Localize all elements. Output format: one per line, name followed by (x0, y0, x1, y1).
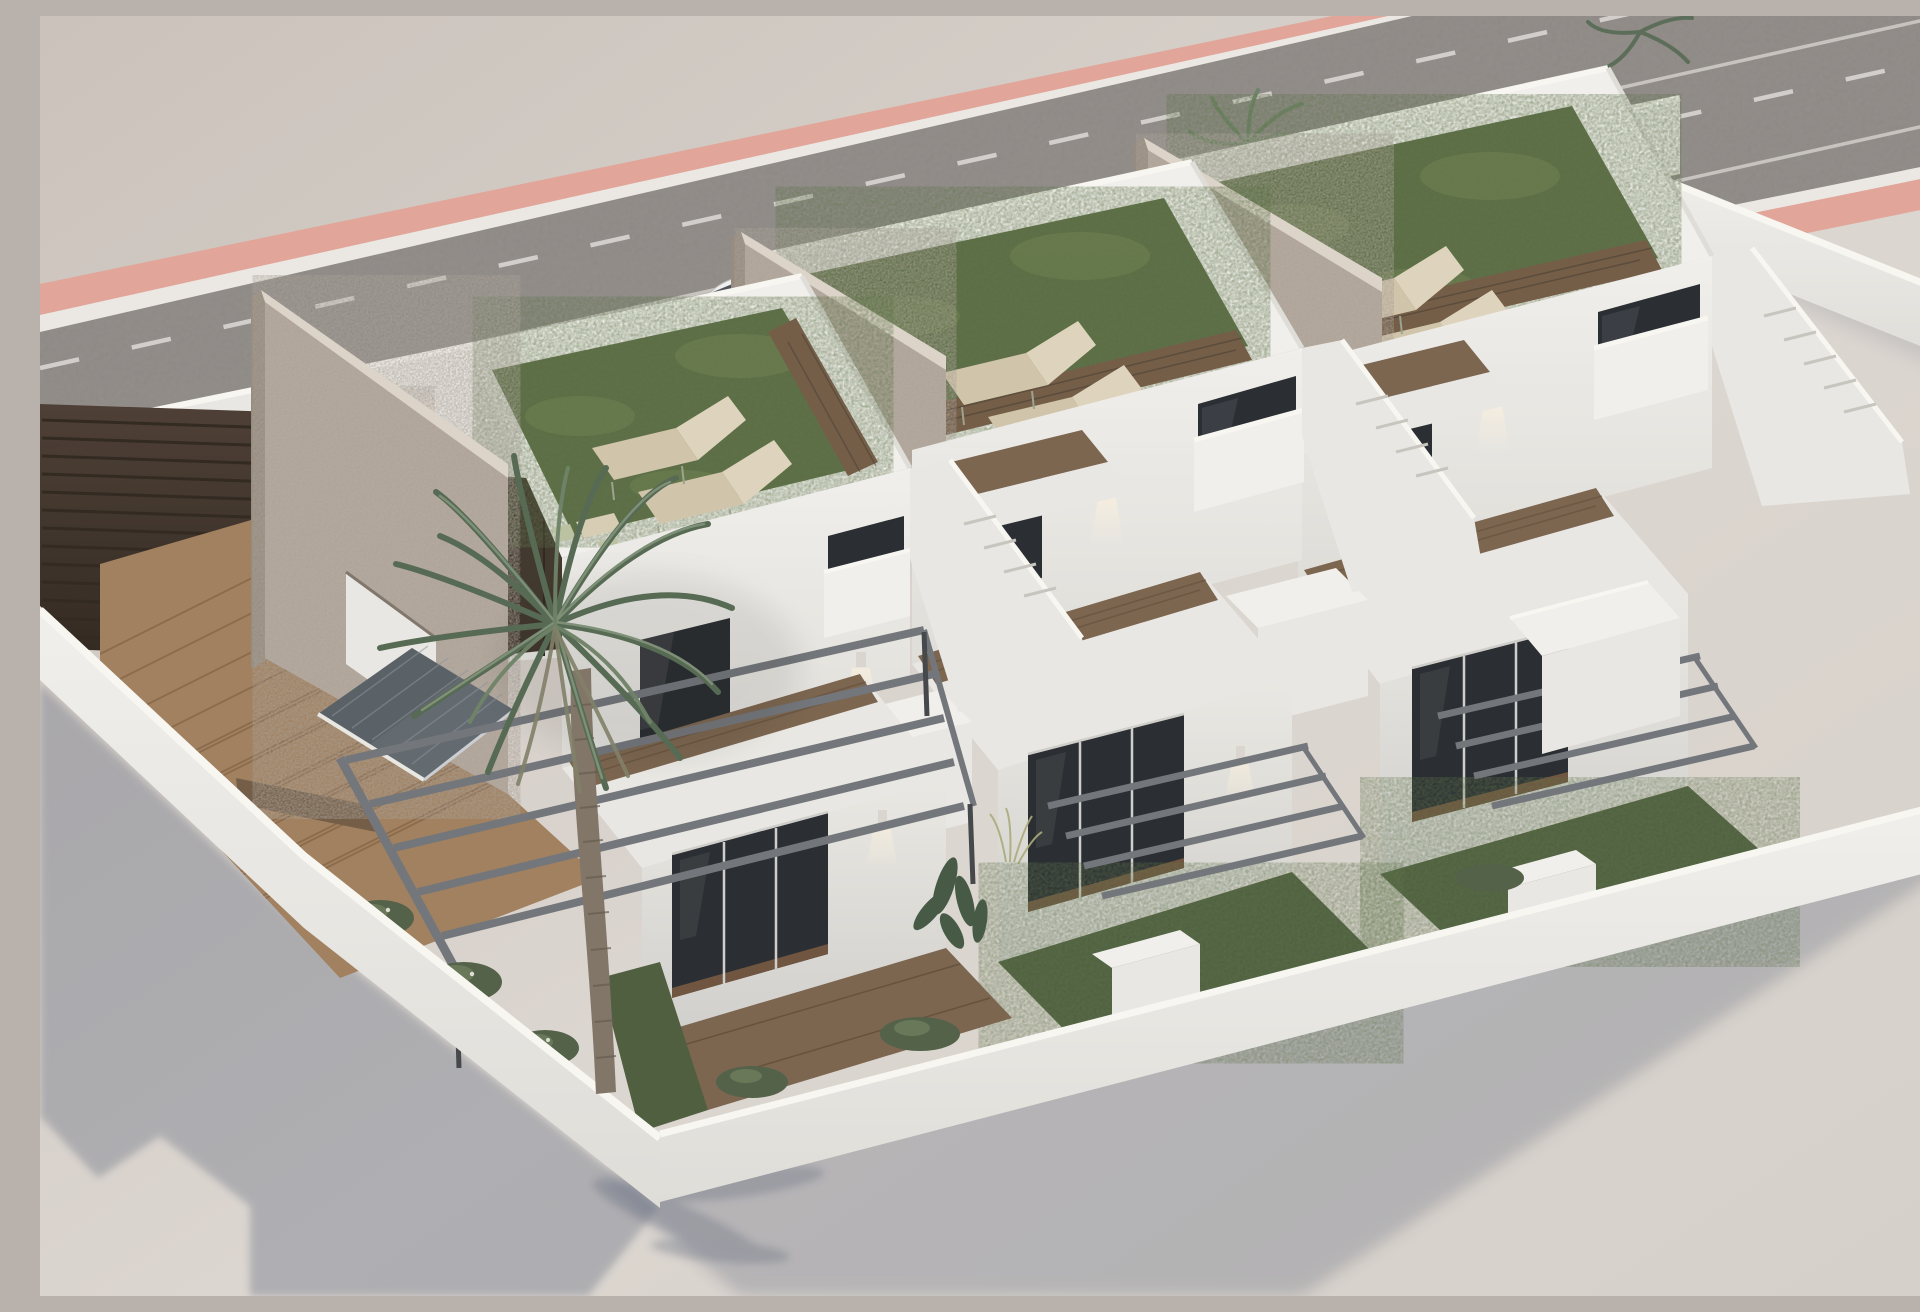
render-canvas: Aerial 3D render of three new-build whit… (40, 16, 1920, 1296)
architectural-render: Aerial 3D render of three new-build whit… (40, 16, 1920, 1296)
warm-grade-overlay (40, 16, 1920, 1296)
